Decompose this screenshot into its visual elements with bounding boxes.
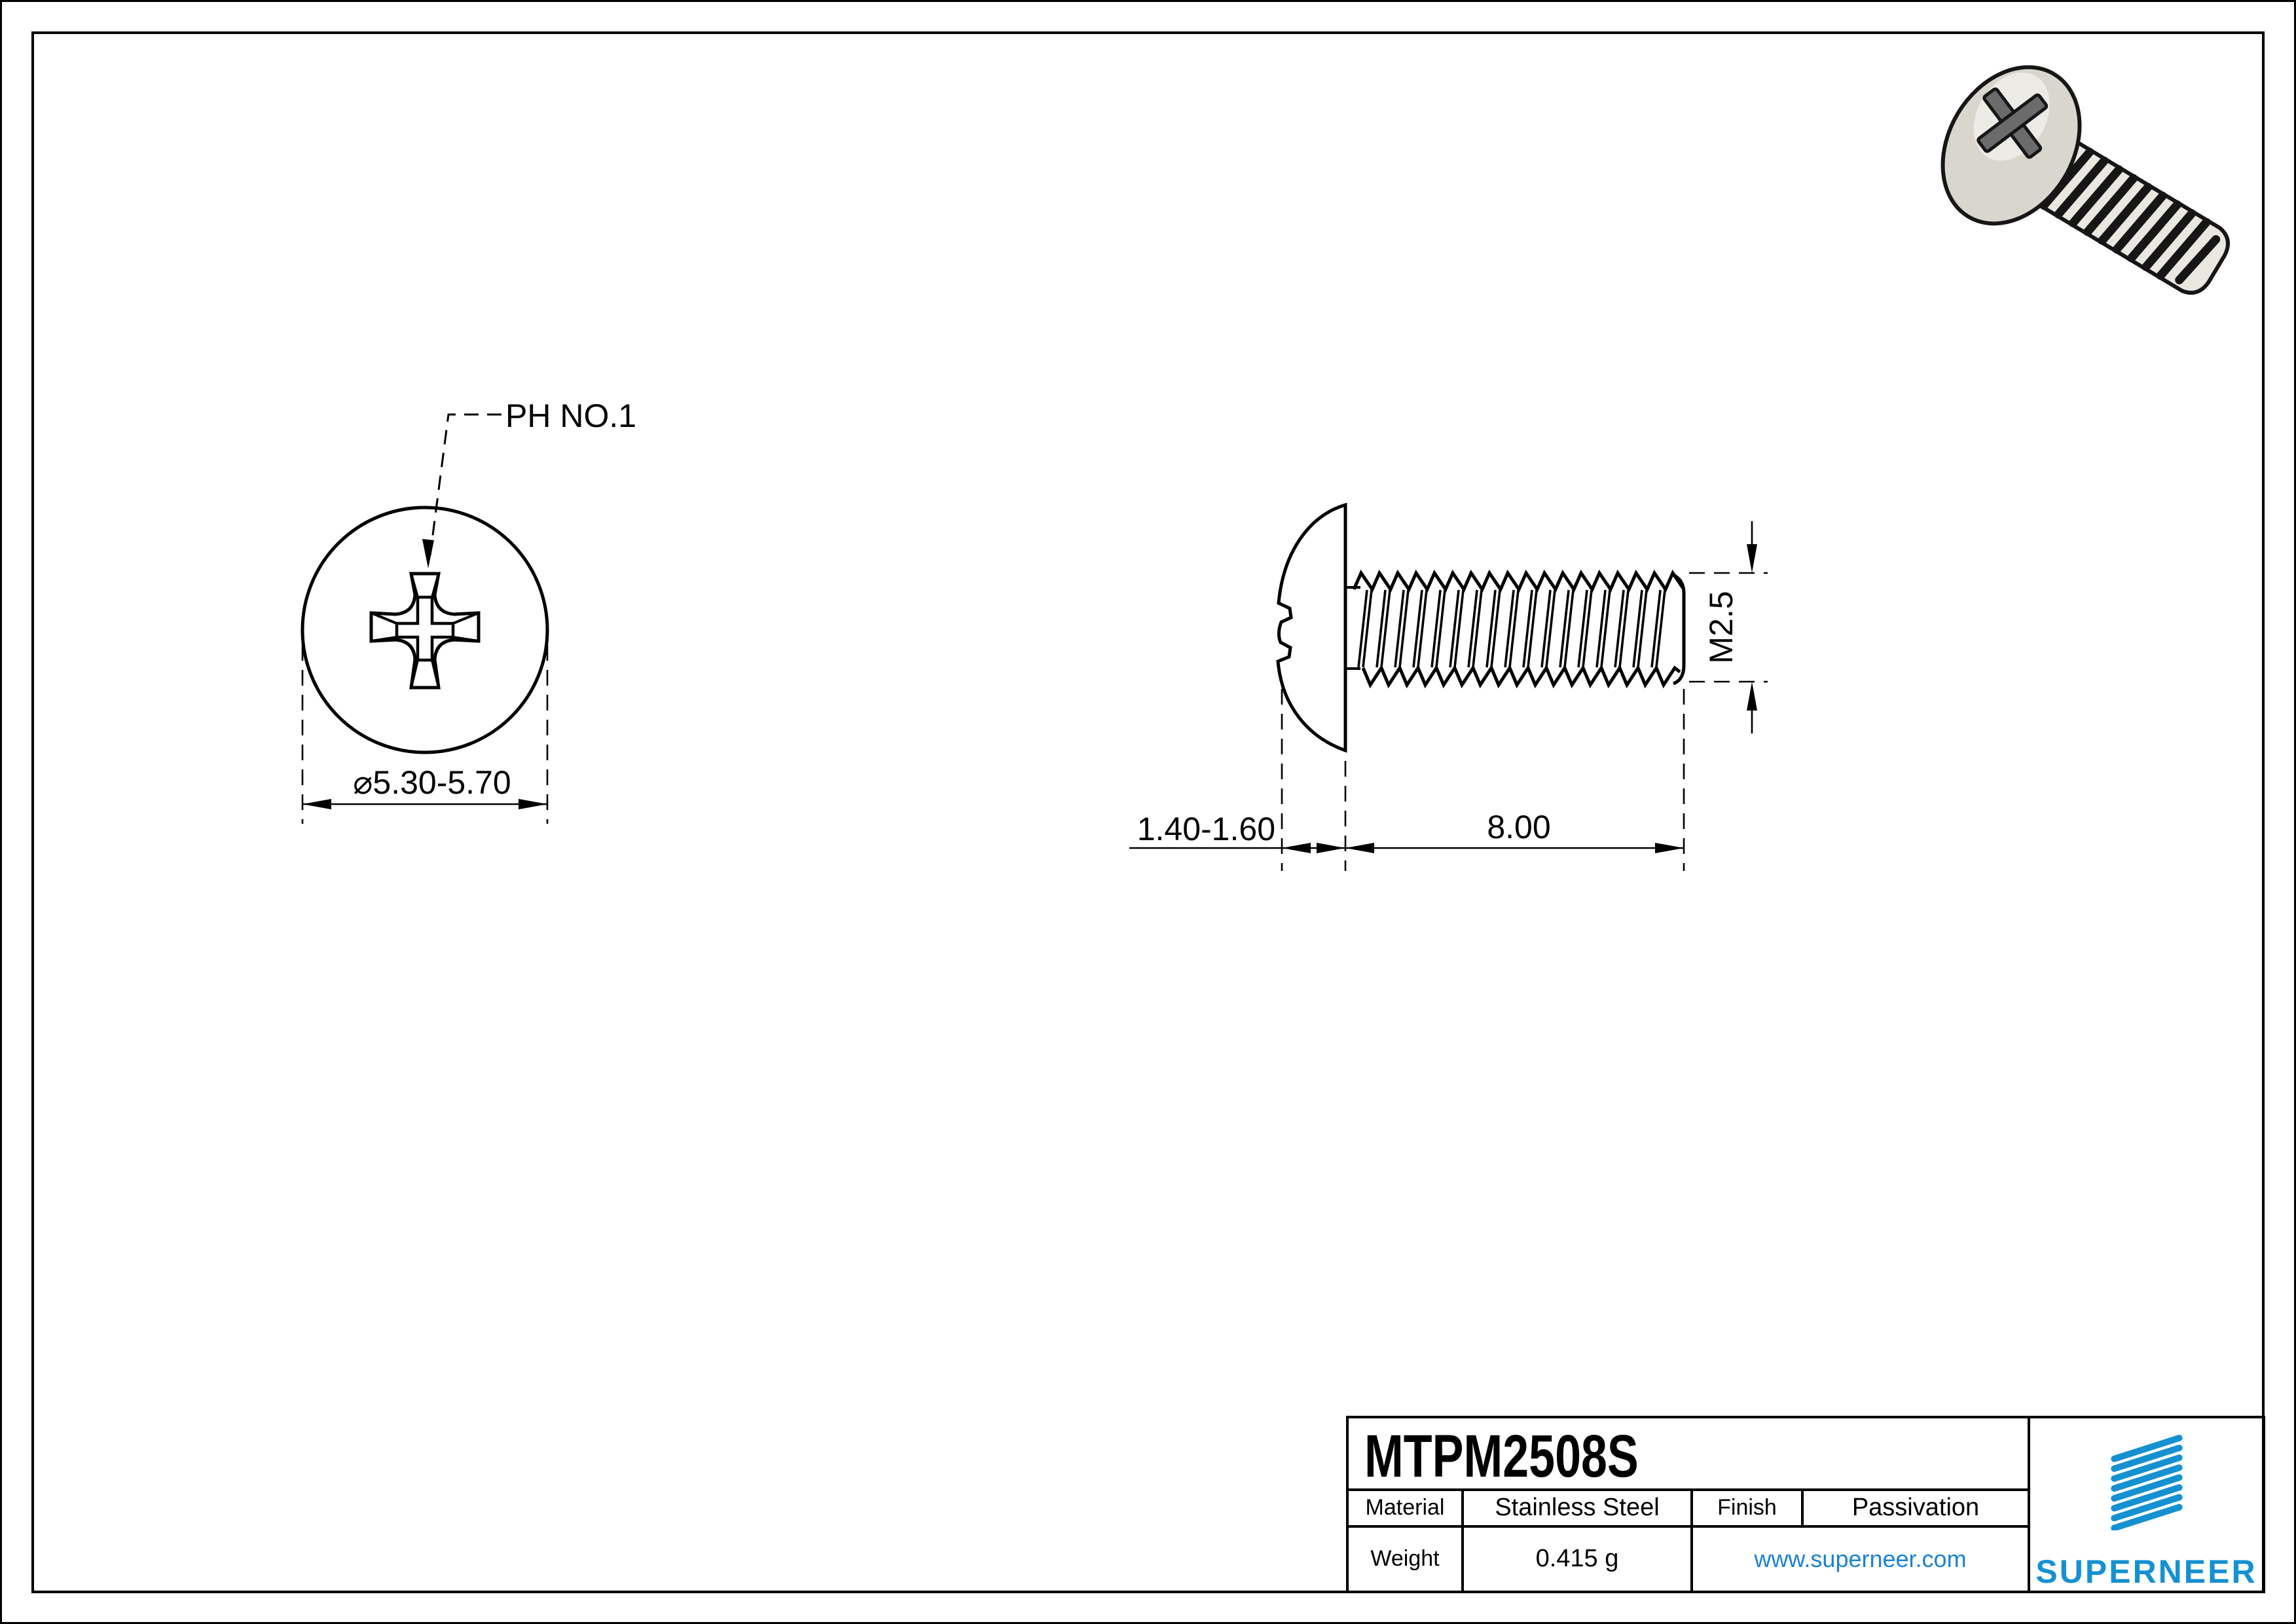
thread-dim-arrow-bottom <box>1747 682 1757 710</box>
thread-crests-bottom <box>1363 668 1680 685</box>
weight-value: 0.415 g <box>1464 1528 1693 1591</box>
material-label: Material <box>1349 1491 1464 1525</box>
technical-drawing: PH NO.1 ⌀5.30-5.70 1 <box>0 0 2296 1624</box>
phillips-recess-inner <box>397 597 453 660</box>
length-dimension-text: 8.00 <box>1487 809 1550 845</box>
drawing-sheet: PH NO.1 ⌀5.30-5.70 1 <box>0 0 2296 1624</box>
ph-callout-arrowhead <box>422 539 434 568</box>
material-value: Stainless Steel <box>1464 1491 1693 1525</box>
head-dim-arrow-right <box>1317 843 1345 853</box>
brand-wordmark: SUPERNEER <box>2035 1553 2257 1591</box>
head-height-dimension-text: 1.40-1.60 <box>1137 811 1275 847</box>
head-profile <box>1278 505 1345 750</box>
front-view <box>302 415 547 824</box>
diameter-arrow-left <box>302 799 331 809</box>
phillips-recess-outer <box>371 574 479 688</box>
ph-callout-leader <box>430 415 501 555</box>
length-dim-extension-lines <box>1282 689 1345 871</box>
screw-3d-render <box>1915 42 2259 340</box>
weight-label: Weight <box>1349 1528 1464 1591</box>
website-link[interactable]: www.superneer.com <box>1754 1545 1966 1573</box>
thread-dim-arrow-top <box>1747 544 1757 573</box>
finish-label: Finish <box>1693 1491 1804 1525</box>
title-block: MTPM2508S M2.5 X 8 mm Truss Head Phillip… <box>1346 1416 2265 1593</box>
weight-website-row: Weight 0.415 g www.superneer.com <box>1349 1525 2028 1591</box>
thread-dimension-text: M2.5 <box>1703 591 1740 663</box>
shank-neck <box>1347 587 1360 669</box>
part-description-section: MTPM2508S M2.5 X 8 mm Truss Head Phillip… <box>1349 1418 2028 1488</box>
phillips-recess-tapers <box>371 574 479 688</box>
thread-flanks <box>1358 590 1665 667</box>
material-finish-row: Material Stainless Steel Finish Passivat… <box>1349 1488 2028 1525</box>
finish-value: Passivation <box>1804 1491 2028 1525</box>
title-block-info: MTPM2508S M2.5 X 8 mm Truss Head Phillip… <box>1349 1418 2030 1591</box>
brand-logo-cell: SUPERNEER <box>2030 1418 2263 1591</box>
head-dim-arrow-left <box>1282 843 1311 853</box>
thread-crests-top <box>1354 573 1684 589</box>
ph-callout-text: PH NO.1 <box>505 397 636 434</box>
length-dim-arrow-left <box>1345 843 1374 853</box>
length-dim-arrow-right <box>1655 843 1684 853</box>
part-number: MTPM2508S <box>1364 1425 1872 1488</box>
brand-logo-icon <box>2109 1433 2185 1530</box>
diameter-arrow-right <box>519 799 547 809</box>
website-cell: www.superneer.com <box>1693 1528 2028 1591</box>
diameter-dimension-text: ⌀5.30-5.70 <box>353 764 511 801</box>
